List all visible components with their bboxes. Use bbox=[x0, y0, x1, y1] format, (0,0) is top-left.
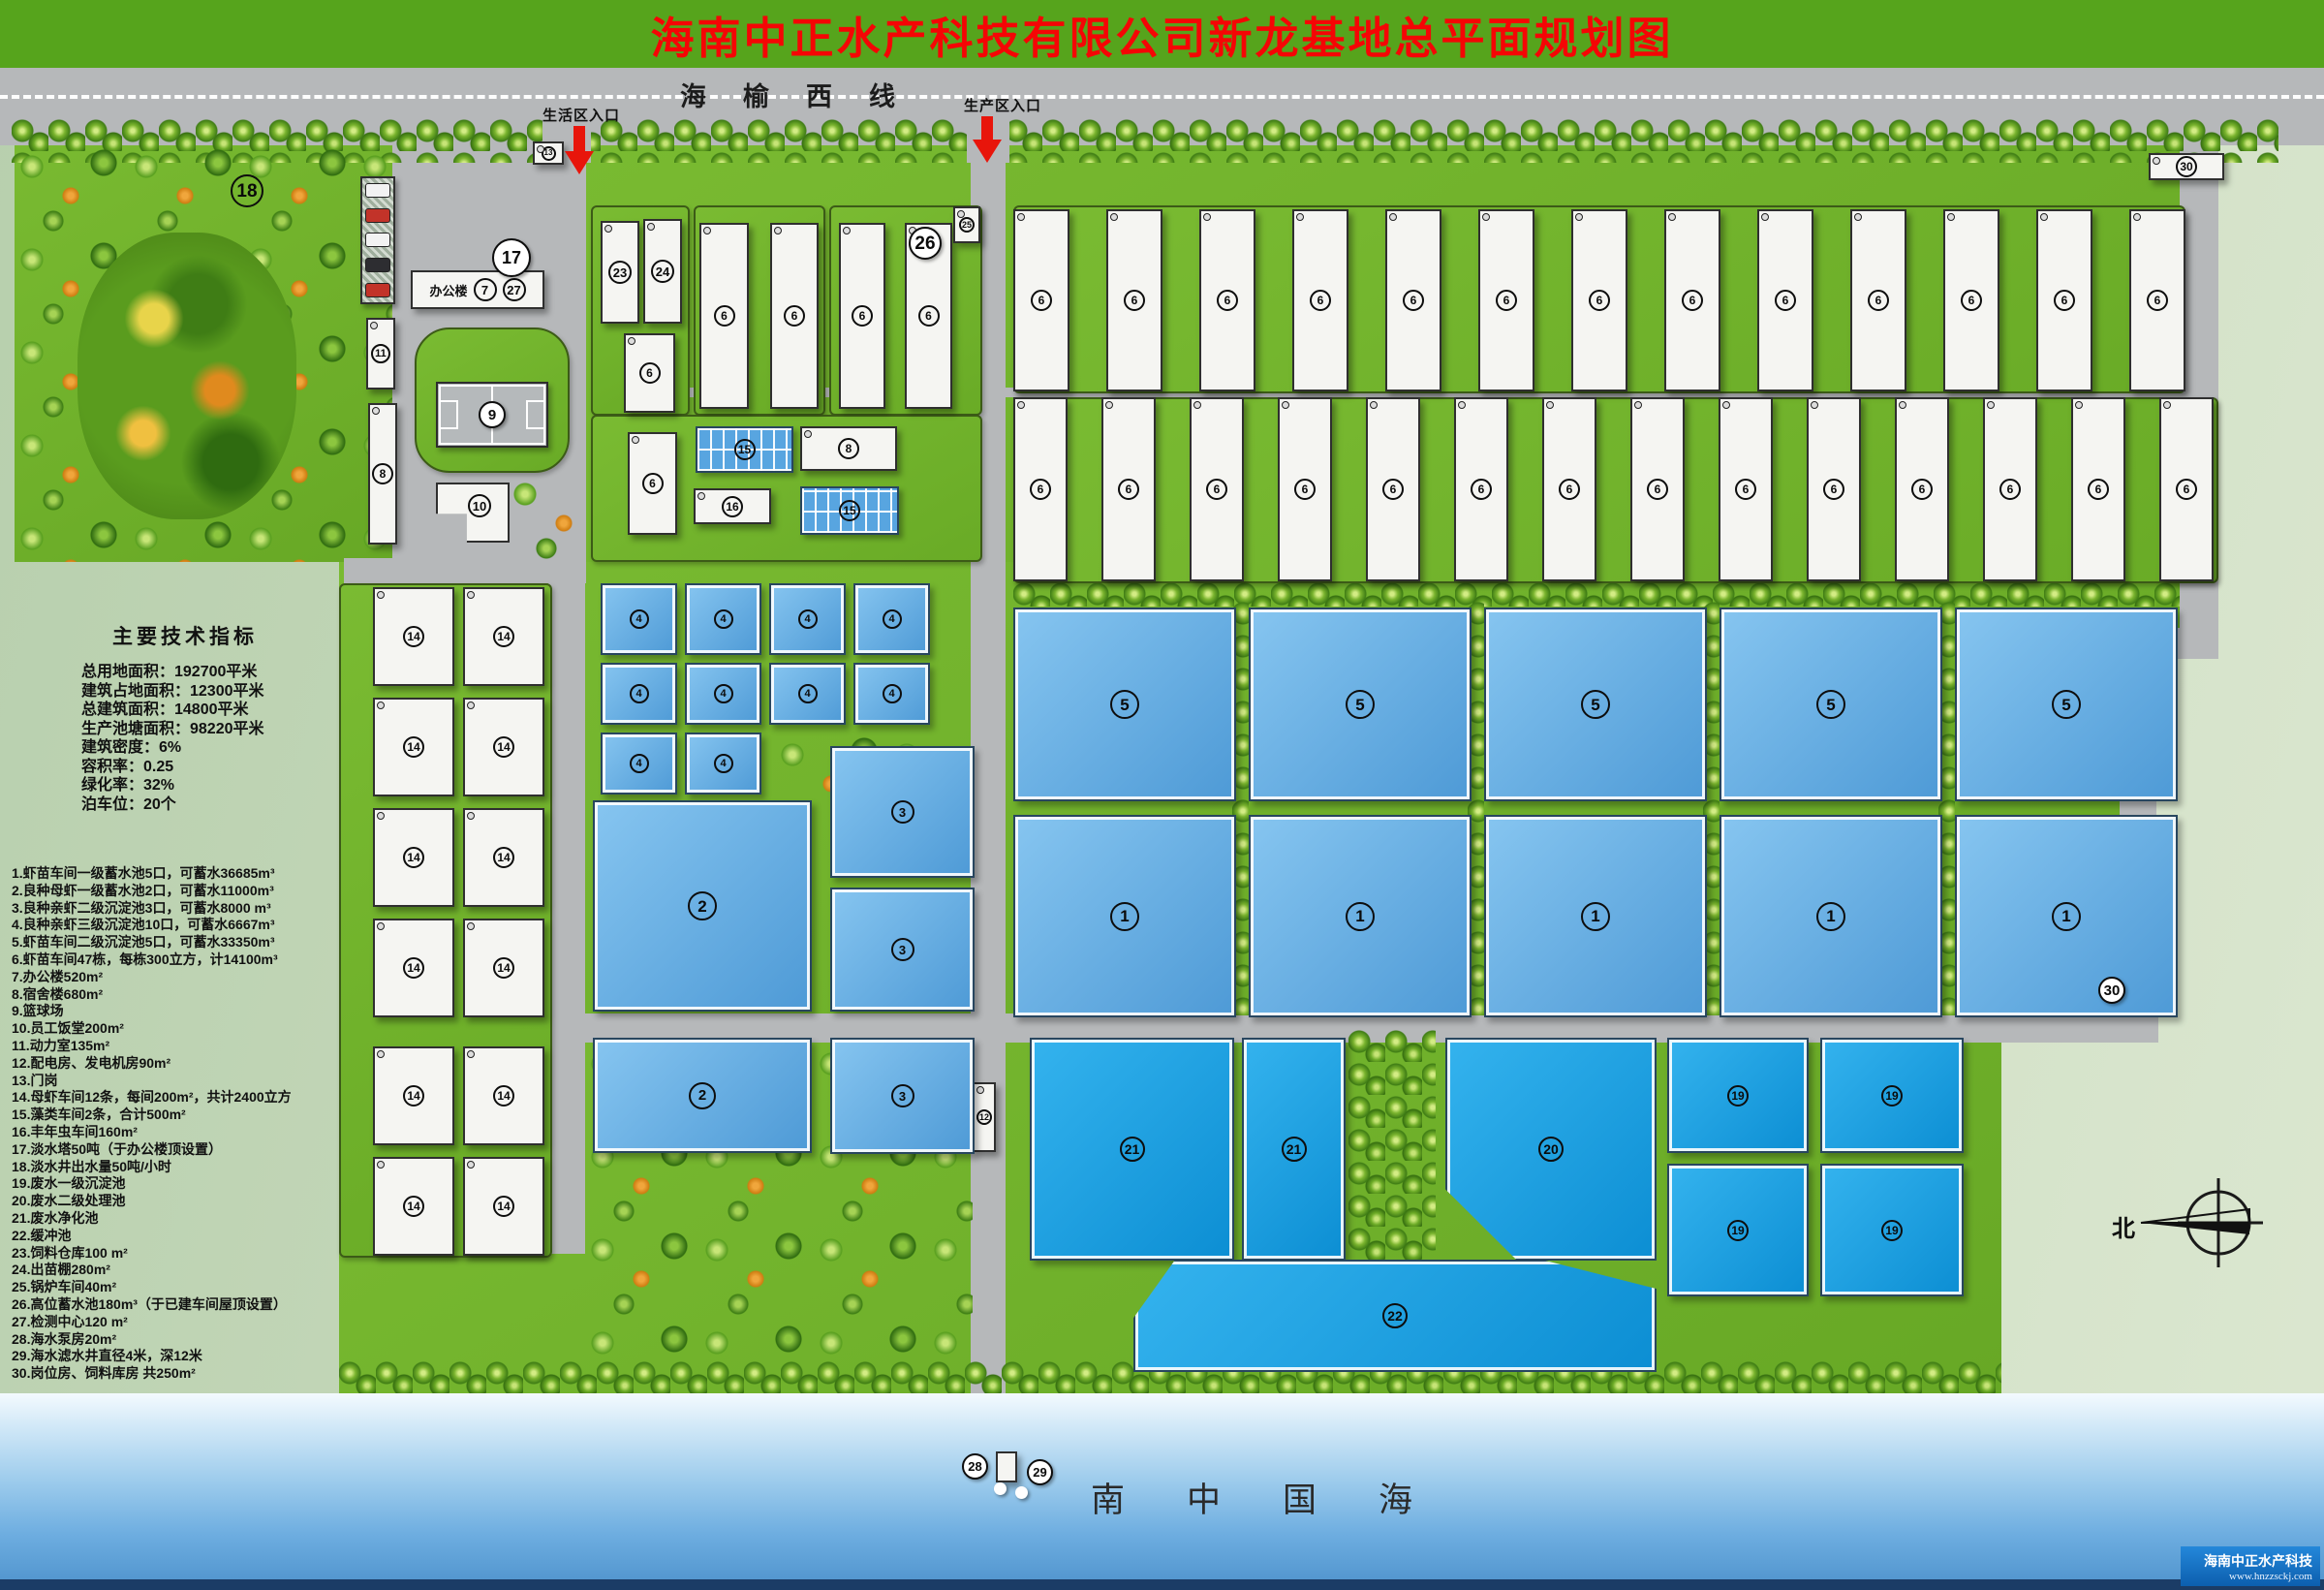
garden-flowerbed bbox=[77, 233, 296, 519]
pond-p4: 4 bbox=[769, 663, 846, 725]
circle-label-guard: 30 bbox=[2098, 977, 2125, 1004]
building-workshop: 6 bbox=[1630, 397, 1685, 581]
compass-rose-icon bbox=[2139, 1174, 2265, 1271]
building-workshop: 6 bbox=[1013, 397, 1068, 581]
building-guard: 30 bbox=[2149, 153, 2224, 180]
indicator-line: 生产池塘面积：98220平米 bbox=[81, 720, 264, 739]
circle-label-workshop: 6 bbox=[1217, 290, 1238, 311]
circle-label-mother: 14 bbox=[493, 1196, 514, 1217]
building-power: 11 bbox=[366, 318, 395, 390]
living-entrance-arrowhead-icon bbox=[565, 151, 594, 174]
circle-label-boiler: 25 bbox=[959, 217, 975, 233]
legend-item: 10.员工饭堂200m² bbox=[12, 1020, 292, 1038]
pond-p4: 4 bbox=[853, 583, 930, 655]
pond-purify: 21 bbox=[1030, 1038, 1234, 1261]
circle-label-mother: 14 bbox=[493, 957, 514, 979]
circle-label-power: 11 bbox=[371, 344, 390, 363]
circle-label-dorm: 8 bbox=[838, 438, 859, 459]
circle-label-workshop: 6 bbox=[1735, 479, 1756, 500]
pond-p1: 1 bbox=[1484, 815, 1707, 1017]
pond-buffer: 22 bbox=[1133, 1260, 1657, 1372]
building-gate: 13 bbox=[533, 141, 564, 165]
circle-label-workshop: 6 bbox=[1999, 479, 2021, 500]
pond-sed1: 19 bbox=[1667, 1164, 1809, 1296]
legend-list: 1.虾苗车间一级蓄水池5口，可蓄水36685m³2.良种母虾一级蓄水池2口，可蓄… bbox=[12, 865, 292, 1383]
legend-item: 5.虾苗车间二级沉淀池5口，可蓄水33350m³ bbox=[12, 934, 292, 951]
building-workshop: 6 bbox=[1101, 397, 1156, 581]
pump-house-number: 28 bbox=[962, 1453, 988, 1480]
pond-p5: 5 bbox=[1249, 608, 1472, 801]
building-workshop: 6 bbox=[1983, 397, 2037, 581]
circle-label-mother: 14 bbox=[403, 1085, 424, 1107]
office-building: 办公楼 7 27 bbox=[411, 270, 544, 309]
building-workshop: 6 bbox=[1292, 209, 1348, 391]
legend-item: 12.配电房、发电机房90m² bbox=[12, 1055, 292, 1073]
legend-item: 25.锅炉车间40m² bbox=[12, 1279, 292, 1296]
canteen-number: 10 bbox=[468, 494, 491, 517]
pond-p5: 5 bbox=[1484, 608, 1707, 801]
pond-p1: 1 bbox=[1720, 815, 1942, 1017]
circle-label-sed2: 20 bbox=[1538, 1137, 1564, 1162]
site-plan-map: 海南中正水产科技有限公司新龙基地总平面规划图 海榆西线 141414141414… bbox=[0, 0, 2324, 1590]
pond-p3: 3 bbox=[830, 888, 975, 1012]
circle-label-workshop: 6 bbox=[1206, 479, 1227, 500]
car bbox=[365, 208, 390, 223]
footer-logo: 海南中正水产科技 www.hnzzsckj.com bbox=[2181, 1546, 2320, 1586]
legend-item: 15.藻类车间2条，合计500m² bbox=[12, 1107, 292, 1124]
indicator-line: 建筑占地面积：12300平米 bbox=[81, 682, 264, 701]
building-boiler: 25 bbox=[953, 206, 980, 243]
circle-label-guard: 30 bbox=[2176, 156, 2197, 177]
building-mother: 14 bbox=[463, 698, 544, 796]
pond-algae: 15 bbox=[696, 426, 793, 473]
car bbox=[365, 183, 390, 198]
office-label: 办公楼 bbox=[429, 281, 467, 299]
building-workshop: 6 bbox=[1943, 209, 1999, 391]
building-feed: 23 bbox=[601, 221, 639, 324]
legend-item: 27.检测中心120 m² bbox=[12, 1314, 292, 1331]
car bbox=[365, 283, 390, 297]
circle-label-workshop: 6 bbox=[918, 305, 940, 327]
pond-purify: 21 bbox=[1242, 1038, 1346, 1261]
building-workshop: 6 bbox=[770, 223, 819, 409]
circle-label-mother: 14 bbox=[493, 626, 514, 647]
legend-item: 29.海水滤水井直径4米，深12米 bbox=[12, 1348, 292, 1365]
pond-sed1: 19 bbox=[1820, 1038, 1964, 1153]
building-workshop: 6 bbox=[1199, 209, 1255, 391]
building-mother: 14 bbox=[463, 1046, 544, 1145]
circle-label-workshop: 6 bbox=[1775, 290, 1796, 311]
circle-label-workshop: 6 bbox=[1559, 479, 1580, 500]
circle-label-mother: 14 bbox=[493, 847, 514, 868]
building-brine: 16 bbox=[694, 488, 771, 524]
circle-label-workshop: 6 bbox=[1496, 290, 1517, 311]
circle-label-mother: 14 bbox=[403, 1196, 424, 1217]
pond-sed1: 19 bbox=[1667, 1038, 1809, 1153]
building-workshop: 6 bbox=[699, 223, 749, 409]
circle-label-p4: 4 bbox=[883, 684, 902, 703]
pond-p2: 2 bbox=[593, 1038, 812, 1153]
circle-label-workshop: 6 bbox=[1647, 479, 1668, 500]
circle-label-p3: 3 bbox=[891, 938, 914, 961]
legend-item: 19.废水一级沉淀池 bbox=[12, 1175, 292, 1193]
circle-label-purify: 21 bbox=[1120, 1137, 1145, 1162]
circle-label-p5: 5 bbox=[2052, 690, 2081, 719]
circle-label-sed1: 19 bbox=[1727, 1085, 1749, 1107]
circle-label-p5: 5 bbox=[1110, 690, 1139, 719]
legend-item: 11.动力室135m² bbox=[12, 1038, 292, 1055]
circle-label-mother: 14 bbox=[403, 626, 424, 647]
legend-item: 2.良种母虾一级蓄水池2口，可蓄水11000m³ bbox=[12, 883, 292, 900]
car bbox=[365, 258, 390, 272]
building-mother: 14 bbox=[463, 1157, 544, 1256]
circle-label-p4: 4 bbox=[714, 754, 733, 773]
building-workshop: 6 bbox=[1664, 209, 1720, 391]
circle-label-p1: 1 bbox=[1110, 902, 1139, 931]
filter-well-icon bbox=[994, 1482, 1007, 1495]
circle-label-garden: 18 bbox=[231, 174, 263, 207]
internal-road bbox=[548, 145, 585, 1254]
tree-row bbox=[1013, 581, 2180, 607]
building-workshop: 6 bbox=[1757, 209, 1813, 391]
building-mother: 14 bbox=[373, 1157, 454, 1256]
legend-item: 6.虾苗车间47栋，每栋300立方，计14100m³ bbox=[12, 951, 292, 969]
circle-label-workshop: 6 bbox=[1682, 290, 1703, 311]
circle-label-workshop: 6 bbox=[2147, 290, 2168, 311]
pond-p4: 4 bbox=[601, 663, 677, 725]
office-number: 7 bbox=[474, 278, 497, 301]
building-workshop: 6 bbox=[1454, 397, 1508, 581]
legend-item: 16.丰年虫车间160m² bbox=[12, 1124, 292, 1141]
circle-label-mother: 14 bbox=[403, 736, 424, 758]
legend-item: 1.虾苗车间一级蓄水池5口，可蓄水36685m³ bbox=[12, 865, 292, 883]
building-workshop: 6 bbox=[839, 223, 885, 409]
circle-label-p5: 5 bbox=[1816, 690, 1845, 719]
water-tower-number: 17 bbox=[492, 238, 531, 277]
pond-p3: 3 bbox=[830, 746, 975, 878]
pond-p4: 4 bbox=[685, 583, 761, 655]
circle-label-dorm: 8 bbox=[372, 463, 393, 484]
indicators-title: 主要技术指标 bbox=[112, 621, 258, 650]
building-workshop: 6 bbox=[1719, 397, 1773, 581]
building-mother: 14 bbox=[463, 919, 544, 1017]
map-layers: 1414141414141414141414146666666666666666… bbox=[0, 0, 2324, 1590]
legend-item: 21.废水净化池 bbox=[12, 1210, 292, 1228]
circle-label-buffer: 22 bbox=[1382, 1303, 1408, 1328]
pond-p1: 1 bbox=[1013, 815, 1236, 1017]
court-number: 9 bbox=[479, 401, 506, 428]
circle-label-sed1: 19 bbox=[1881, 1220, 1903, 1241]
circle-label-workshop: 6 bbox=[1310, 290, 1331, 311]
circle-label-brine: 16 bbox=[722, 496, 743, 517]
pond-p5: 5 bbox=[1720, 608, 1942, 801]
indicators-list: 总用地面积：192700平米建筑占地面积：12300平米总建筑面积：14800平… bbox=[81, 663, 264, 814]
legend-item: 9.篮球场 bbox=[12, 1003, 292, 1020]
building-workshop: 6 bbox=[1571, 209, 1627, 391]
legend-item: 22.缓冲池 bbox=[12, 1228, 292, 1245]
legend-item: 7.办公楼520m² bbox=[12, 969, 292, 986]
legend-item: 17.淡水塔50吨（于办公楼顶设置） bbox=[12, 1141, 292, 1159]
circle-label-workshop: 6 bbox=[642, 473, 664, 494]
indicator-line: 容积率：0.25 bbox=[81, 758, 264, 777]
building-mother: 14 bbox=[373, 587, 454, 686]
circle-label-workshop: 6 bbox=[1403, 290, 1424, 311]
circle-label-p4: 4 bbox=[630, 684, 649, 703]
circle-label-workshop: 6 bbox=[1030, 479, 1051, 500]
circle-label-p4: 4 bbox=[714, 609, 733, 629]
pond-p5: 5 bbox=[1955, 608, 2178, 801]
building-workshop: 6 bbox=[1366, 397, 1420, 581]
circle-label-workshop: 6 bbox=[1589, 290, 1610, 311]
building-mother: 14 bbox=[463, 808, 544, 907]
production-entrance-arrowhead-icon bbox=[973, 140, 1002, 163]
circle-label-p2: 2 bbox=[689, 1082, 716, 1109]
pond-p4: 4 bbox=[685, 733, 761, 795]
indicator-line: 总用地面积：192700平米 bbox=[81, 663, 264, 682]
circle-label-purify: 21 bbox=[1282, 1137, 1307, 1162]
pond-p4: 4 bbox=[685, 663, 761, 725]
circle-label-workshop: 6 bbox=[784, 305, 805, 327]
circle-label-p4: 4 bbox=[630, 754, 649, 773]
building-workshop: 6 bbox=[1807, 397, 1861, 581]
pond-p5: 5 bbox=[1013, 608, 1236, 801]
circle-label-p2: 2 bbox=[688, 891, 717, 920]
pump-house-building bbox=[996, 1451, 1017, 1482]
building-workshop: 6 bbox=[1190, 397, 1244, 581]
basketball-court: 9 bbox=[436, 382, 548, 448]
circle-label-sed1: 19 bbox=[1727, 1220, 1749, 1241]
building-workshop: 6 bbox=[1542, 397, 1596, 581]
car bbox=[365, 233, 390, 247]
circle-label-p3: 3 bbox=[891, 1084, 914, 1107]
building-workshop: 6 bbox=[1478, 209, 1534, 391]
building-workshop: 6 bbox=[2036, 209, 2092, 391]
circle-label-workshop: 6 bbox=[639, 362, 661, 384]
pond-p4: 4 bbox=[601, 733, 677, 795]
pond-algae: 15 bbox=[800, 486, 899, 535]
building-workshop: 6 bbox=[2071, 397, 2125, 581]
circle-label-p4: 4 bbox=[630, 609, 649, 629]
indicator-line: 泊车位：20个 bbox=[81, 795, 264, 815]
pond-p4: 4 bbox=[769, 583, 846, 655]
circle-label-p4: 4 bbox=[883, 609, 902, 629]
sea-label: 南中国海 bbox=[1091, 1473, 1474, 1522]
filter-well-icon bbox=[1015, 1486, 1028, 1499]
indicator-line: 总建筑面积：14800平米 bbox=[81, 701, 264, 720]
pond-p4: 4 bbox=[601, 583, 677, 655]
building-workshop: 6 bbox=[1278, 397, 1332, 581]
building-mother: 14 bbox=[463, 587, 544, 686]
legend-item: 3.良种亲虾二级沉淀池3口，可蓄水8000 m³ bbox=[12, 900, 292, 918]
circle-label-mother: 14 bbox=[403, 847, 424, 868]
circle-label-p5: 5 bbox=[1581, 690, 1610, 719]
building-workshop: 6 bbox=[1106, 209, 1162, 391]
circle-label-workshop: 6 bbox=[1911, 479, 1933, 500]
building-workshop: 6 bbox=[2129, 209, 2185, 391]
indicator-line: 建筑密度：6% bbox=[81, 738, 264, 758]
circle-label-workshop: 6 bbox=[1823, 479, 1844, 500]
living-entrance-label: 生活区入口 bbox=[542, 105, 620, 125]
circle-label-p1: 1 bbox=[1346, 902, 1375, 931]
production-entrance-arrow-icon bbox=[981, 116, 993, 140]
legend-item: 18.淡水井出水量50吨/小时 bbox=[12, 1159, 292, 1176]
parking-strip bbox=[360, 176, 395, 304]
building-workshop: 6 bbox=[2159, 397, 2214, 581]
building-mother: 14 bbox=[373, 1046, 454, 1145]
pond-p4: 4 bbox=[853, 663, 930, 725]
circle-label-mother: 14 bbox=[403, 957, 424, 979]
building-mother: 14 bbox=[373, 698, 454, 796]
compass-north-label: 北 bbox=[2112, 1209, 2135, 1243]
circle-label-algae: 15 bbox=[839, 500, 860, 521]
tree-row bbox=[1348, 1029, 1436, 1271]
building-dorm: 8 bbox=[800, 426, 897, 471]
building-workshop: 6 bbox=[1895, 397, 1949, 581]
circle-label-p4: 4 bbox=[714, 684, 733, 703]
legend-item: 26.高位蓄水池180m³（于已建车间屋顶设置） bbox=[12, 1296, 292, 1314]
circle-label-workshop: 6 bbox=[2054, 290, 2075, 311]
circle-label-workshop: 6 bbox=[1031, 290, 1052, 311]
legend-item: 28.海水泵房20m² bbox=[12, 1331, 292, 1349]
circle-label-workshop: 6 bbox=[1294, 479, 1316, 500]
legend-item: 20.废水二级处理池 bbox=[12, 1193, 292, 1210]
circle-label-workshop: 6 bbox=[852, 305, 873, 327]
circle-label-feed: 23 bbox=[608, 261, 632, 284]
legend-item: 8.宿舍楼680m² bbox=[12, 986, 292, 1004]
circle-label-sed1: 19 bbox=[1881, 1085, 1903, 1107]
footer-website: www.hnzzsckj.com bbox=[2229, 1571, 2312, 1582]
circle-label-p3: 3 bbox=[891, 800, 914, 824]
indicator-line: 绿化率：32% bbox=[81, 776, 264, 795]
circle-label-workshop: 6 bbox=[1868, 290, 1889, 311]
circle-label-p1: 1 bbox=[1816, 902, 1845, 931]
building-workshop: 6 bbox=[1013, 209, 1069, 391]
building-dorm: 8 bbox=[368, 403, 397, 545]
legend-item: 4.良种亲虾三级沉淀池10口，可蓄水6667m³ bbox=[12, 917, 292, 934]
lab-number: 27 bbox=[503, 278, 526, 301]
circle-label-p4: 4 bbox=[798, 609, 818, 629]
legend-item: 13.门岗 bbox=[12, 1073, 292, 1090]
filter-well-number: 29 bbox=[1027, 1459, 1053, 1485]
building-mother: 14 bbox=[373, 808, 454, 907]
circle-label-p4: 4 bbox=[798, 684, 818, 703]
circle-label-p1: 1 bbox=[2052, 902, 2081, 931]
circle-label-workshop: 6 bbox=[2088, 479, 2109, 500]
circle-label-workshop: 6 bbox=[1471, 479, 1492, 500]
circle-label-elec: 12 bbox=[976, 1109, 992, 1125]
pond-p1: 1 bbox=[1249, 815, 1472, 1017]
building-outseed: 24 bbox=[643, 219, 682, 324]
pond-p1: 1 bbox=[1955, 815, 2178, 1017]
production-entrance-label: 生产区入口 bbox=[964, 95, 1041, 115]
footer-company: 海南中正水产科技 bbox=[2204, 1551, 2312, 1571]
circle-label-outseed: 24 bbox=[651, 260, 674, 283]
pond-sed1: 19 bbox=[1820, 1164, 1964, 1296]
legend-item: 14.母虾车间12条，每间200m²，共计2400立方 bbox=[12, 1089, 292, 1107]
circle-label-workshop: 6 bbox=[2176, 479, 2197, 500]
building-workshop: 6 bbox=[628, 432, 677, 535]
circle-label-algae: 15 bbox=[734, 439, 756, 460]
pond-p3: 3 bbox=[830, 1038, 975, 1154]
circle-label-p5: 5 bbox=[1346, 690, 1375, 719]
building-mother: 14 bbox=[373, 919, 454, 1017]
circle-label-highpond: 26 bbox=[909, 227, 942, 260]
circle-label-gate: 13 bbox=[542, 146, 556, 161]
circle-label-p1: 1 bbox=[1581, 902, 1610, 931]
circle-label-workshop: 6 bbox=[1961, 290, 1982, 311]
living-entrance-arrow-icon bbox=[573, 126, 585, 151]
building-workshop: 6 bbox=[1385, 209, 1441, 391]
building-workshop: 6 bbox=[624, 333, 675, 413]
pond-p2: 2 bbox=[593, 800, 812, 1012]
legend-item: 24.出苗棚280m² bbox=[12, 1262, 292, 1279]
circle-label-workshop: 6 bbox=[1382, 479, 1404, 500]
circle-label-workshop: 6 bbox=[714, 305, 735, 327]
circle-label-workshop: 6 bbox=[1124, 290, 1145, 311]
compass-icon: 北 bbox=[2112, 1174, 2267, 1271]
building-elec: 12 bbox=[973, 1082, 996, 1152]
circle-label-mother: 14 bbox=[493, 736, 514, 758]
garden-area bbox=[508, 473, 583, 576]
building-workshop: 6 bbox=[1850, 209, 1906, 391]
circle-label-workshop: 6 bbox=[1118, 479, 1139, 500]
bottom-edge bbox=[0, 1579, 2324, 1590]
legend-item: 23.饲料仓库100 m² bbox=[12, 1245, 292, 1263]
legend-item: 30.岗位房、饲料库房 共250m² bbox=[12, 1365, 292, 1383]
circle-label-mother: 14 bbox=[493, 1085, 514, 1107]
